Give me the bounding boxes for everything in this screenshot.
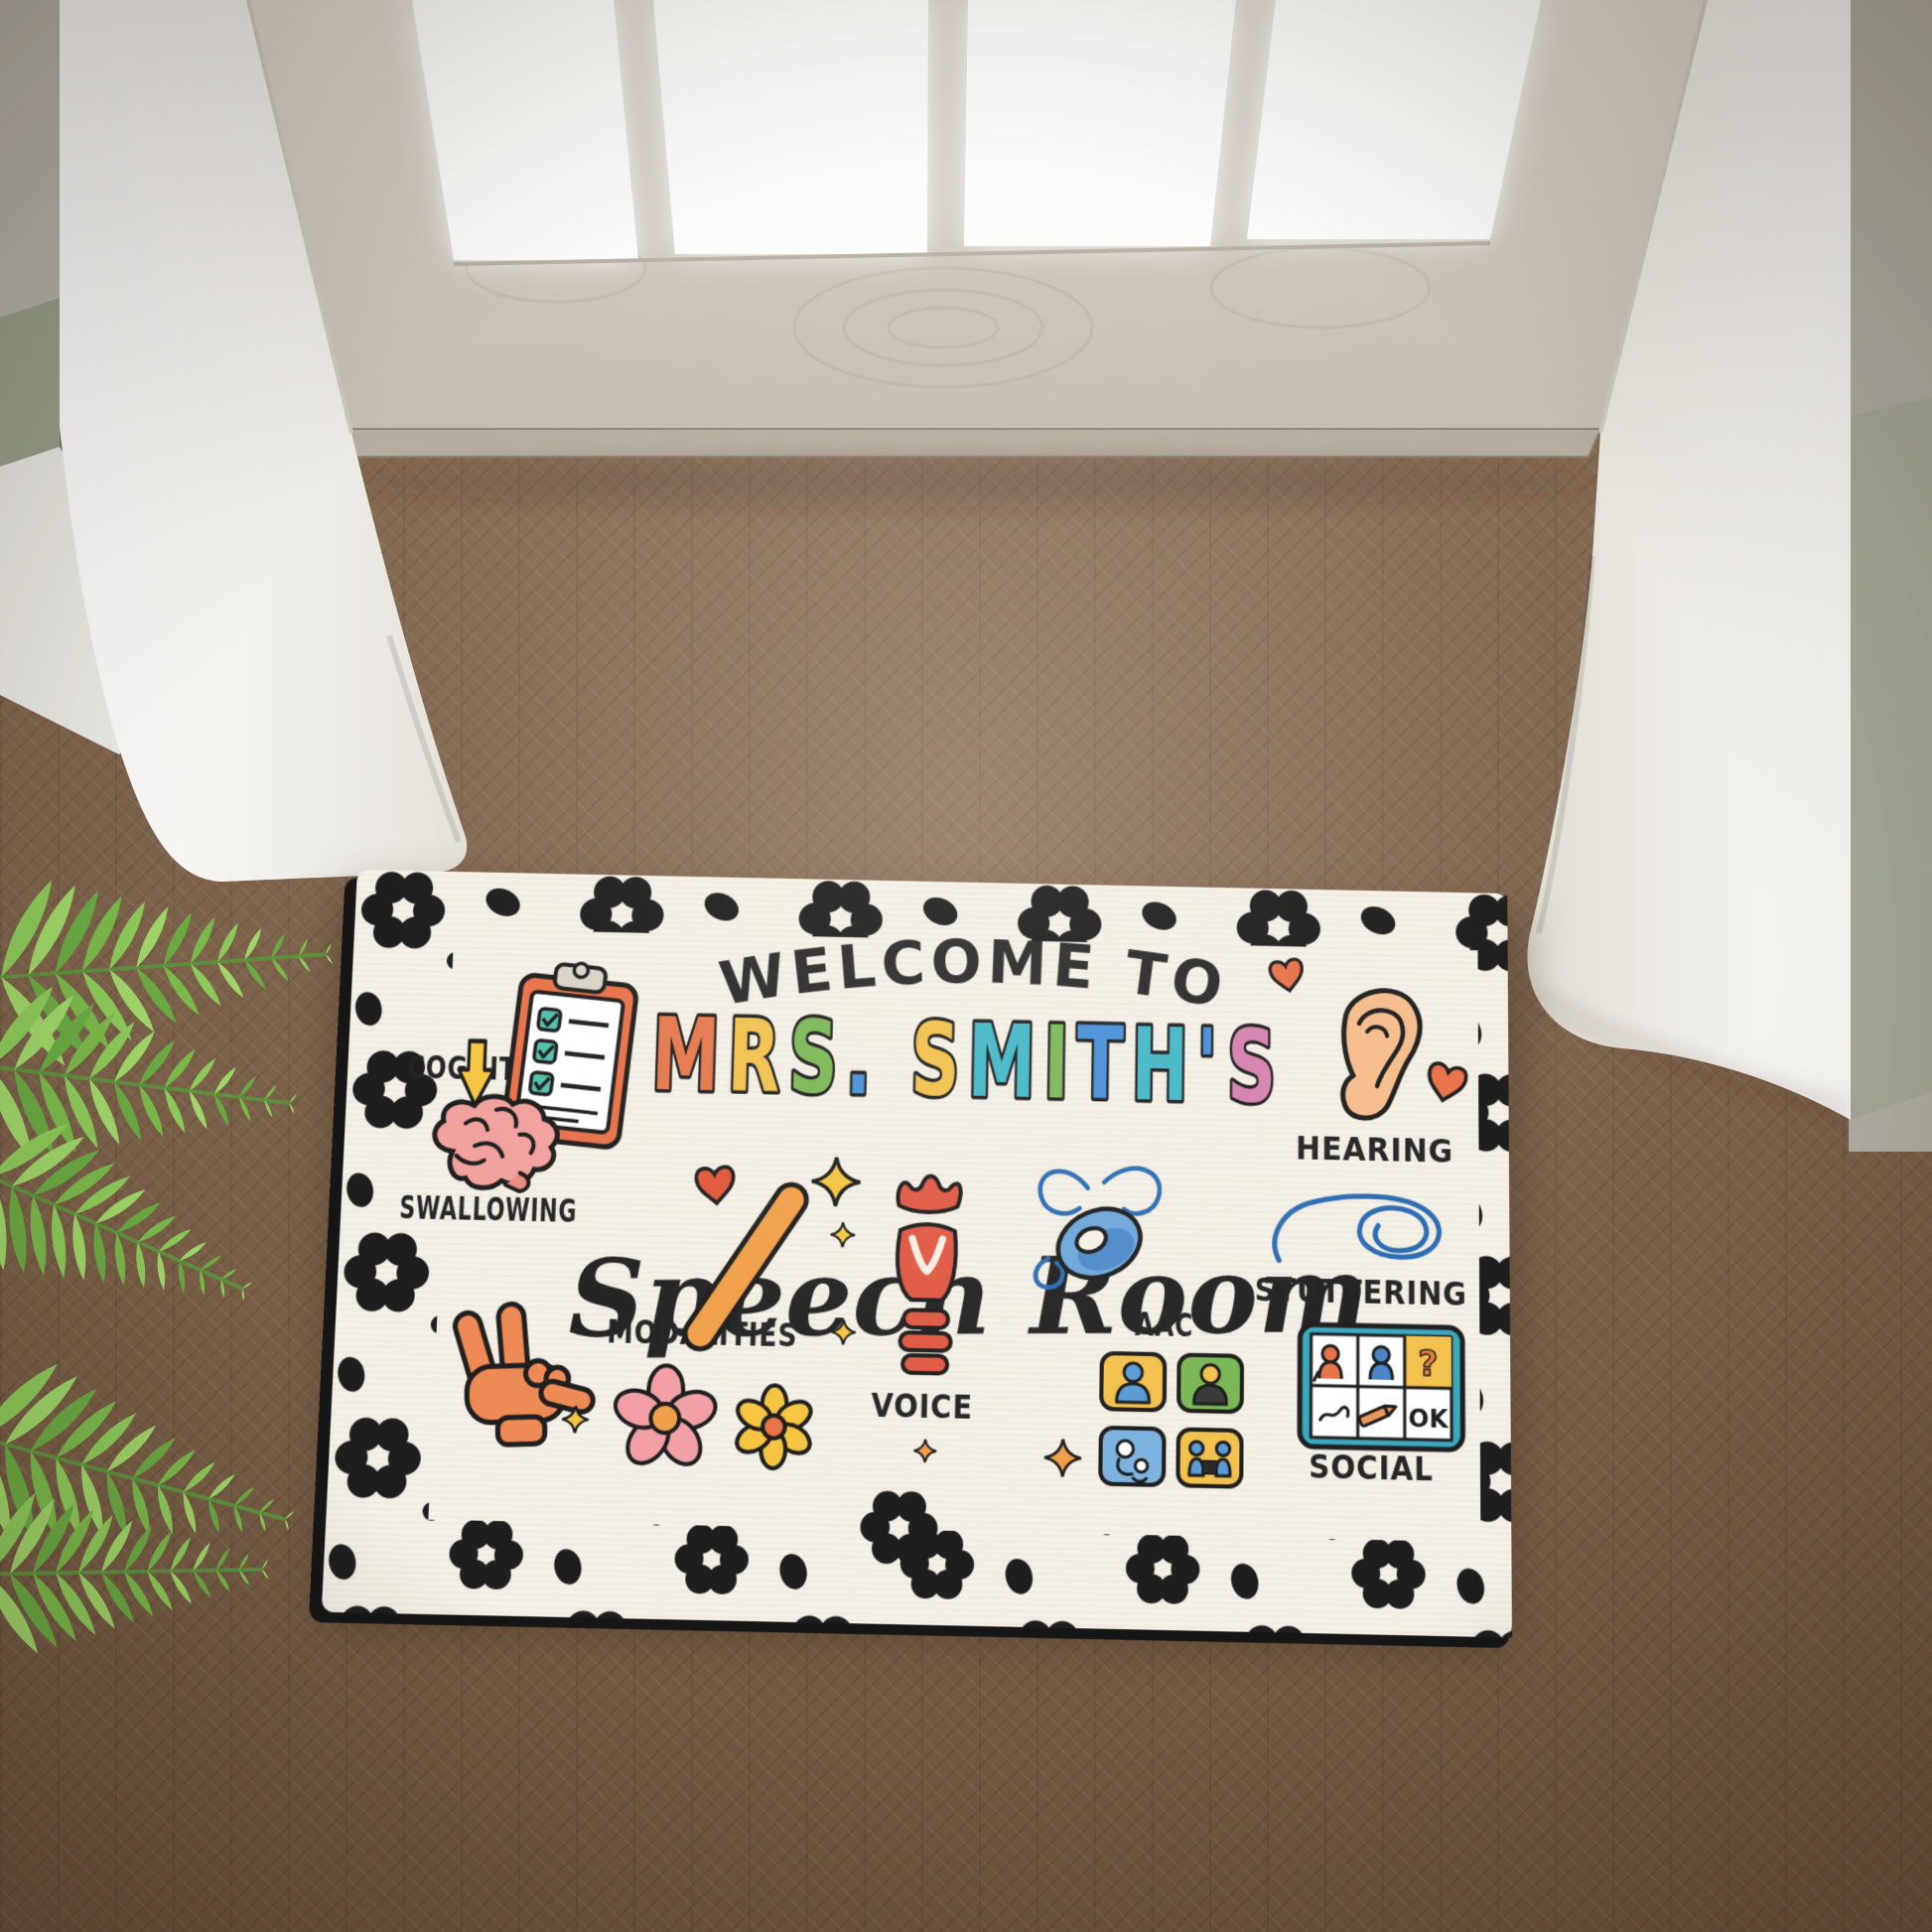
doormat: WELCOME TO MRS.SMITH'S Speech Room COGNI… xyxy=(308,860,1522,1657)
glass-pane-3 xyxy=(964,0,1236,246)
right-green-panel xyxy=(1849,397,1932,1120)
name-letter: R xyxy=(726,999,781,1117)
name-letter: S xyxy=(787,1000,840,1118)
name-letter: ' xyxy=(1196,1009,1218,1126)
label-voice: VOICE xyxy=(871,1385,973,1427)
name-letter: M xyxy=(967,1004,1036,1122)
left-wall-sliver xyxy=(0,0,60,328)
communication-board-icon: ? OK xyxy=(1300,1324,1462,1449)
label-aac: AAC xyxy=(1135,1305,1194,1345)
name-letter: H xyxy=(1131,1007,1189,1125)
board-ok-label: OK xyxy=(1408,1404,1449,1434)
name-letter: I xyxy=(1042,1006,1069,1123)
fern-plant xyxy=(0,850,421,1684)
larynx-icon xyxy=(895,1175,961,1374)
door-glass-panes xyxy=(412,0,1541,264)
door-threshold xyxy=(340,429,1600,457)
name-letter: S xyxy=(1226,1009,1276,1127)
name-letter: T xyxy=(1076,1006,1124,1124)
name-letter: S xyxy=(909,1003,961,1121)
label-stuttering: STUTTERING xyxy=(1255,1270,1467,1313)
name-letter: . xyxy=(844,1001,873,1118)
board-question-mark: ? xyxy=(1418,1343,1438,1384)
glass-pane-4 xyxy=(1247,0,1541,239)
door-contact-shadow xyxy=(335,456,1605,507)
name-letter: M xyxy=(650,997,722,1115)
glass-pane-2 xyxy=(653,0,928,254)
label-hearing: HEARING xyxy=(1296,1129,1453,1171)
label-swallowing: SWALLOWING xyxy=(399,1187,578,1230)
label-social: SOCIAL xyxy=(1309,1447,1434,1489)
entryway-scene: WELCOME TO MRS.SMITH'S Speech Room COGNI… xyxy=(0,0,1932,1932)
left-green-wall xyxy=(0,298,60,469)
